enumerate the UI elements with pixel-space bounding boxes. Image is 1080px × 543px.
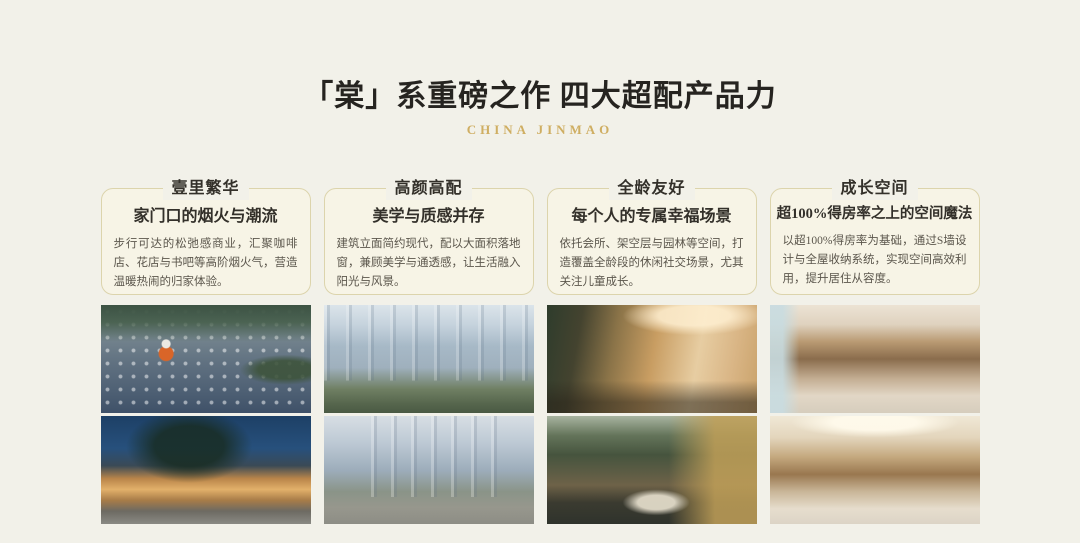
- brand-wordmark: CHINA JINMAO: [0, 122, 1080, 138]
- feature-card: 全龄友好 每个人的专属幸福场景 依托会所、架空层与园林等空间，打造覆盖全龄段的休…: [547, 188, 757, 295]
- card-heading: 成长空间: [831, 178, 917, 200]
- card-subheading: 家门口的烟火与潮流: [106, 202, 306, 226]
- product-columns: 壹里繁华 家门口的烟火与潮流 步行可达的松弛感商业，汇聚咖啡店、花店与书吧等高阶…: [0, 188, 1080, 524]
- column-space-magic: 成长空间 超100%得房率之上的空间魔法 以超100%得房率为基础，通过S墙设计…: [770, 188, 980, 524]
- card-subheading: 超100%得房率之上的空间魔法: [775, 202, 975, 223]
- card-description: 步行可达的松弛感商业，汇聚咖啡店、花店与书吧等高阶烟火气，营造温暖热闹的归家体验…: [114, 235, 298, 292]
- column-facade-quality: 高颜高配 美学与质感并存 建筑立面简约现代，配以大面积落地窗，兼顾美学与通透感，…: [324, 188, 534, 524]
- courtyard-garden-dusk-photo: [547, 416, 757, 524]
- column-all-age-friendly: 全龄友好 每个人的专属幸福场景 依托会所、架空层与园林等空间，打造覆盖全龄段的休…: [547, 188, 757, 524]
- aerial-plaza-dusk-photo: [101, 305, 311, 413]
- card-subheading: 美学与质感并存: [329, 202, 529, 226]
- home-storage-bar-photo: [770, 416, 980, 524]
- card-description: 建筑立面简约现代，配以大面积落地窗，兼顾美学与通透感，让生活融入阳光与风景。: [337, 235, 521, 292]
- retail-street-night-photo: [101, 416, 311, 524]
- feature-card: 壹里繁华 家门口的烟火与潮流 步行可达的松弛感商业，汇聚咖啡店、花店与书吧等高阶…: [101, 188, 311, 295]
- card-description: 以超100%得房率为基础，通过S墙设计与全屋收纳系统，实现空间高效利用，提升居住…: [783, 232, 967, 289]
- promo-page: 「棠」系重磅之作 四大超配产品力 CHINA JINMAO 壹里繁华 家门口的烟…: [0, 0, 1080, 543]
- tower-garden-path-photo: [324, 416, 534, 524]
- page-title: 「棠」系重磅之作 四大超配产品力: [0, 0, 1080, 113]
- card-heading: 壹里繁华: [162, 178, 248, 200]
- bedroom-wardrobe-photo: [770, 305, 980, 413]
- card-subheading: 每个人的专属幸福场景: [552, 202, 752, 226]
- feature-card: 成长空间 超100%得房率之上的空间魔法 以超100%得房率为基础，通过S墙设计…: [770, 188, 980, 295]
- feature-card: 高颜高配 美学与质感并存 建筑立面简约现代，配以大面积落地窗，兼顾美学与通透感，…: [324, 188, 534, 295]
- card-description: 依托会所、架空层与园林等空间，打造覆盖全龄段的休闲社交场景，尤其关注儿童成长。: [560, 235, 744, 292]
- card-heading: 全龄友好: [608, 178, 694, 200]
- clubhouse-lounge-photo: [547, 305, 757, 413]
- card-heading: 高颜高配: [385, 178, 471, 200]
- residential-towers-day-photo: [324, 305, 534, 413]
- column-neighborhood-retail: 壹里繁华 家门口的烟火与潮流 步行可达的松弛感商业，汇聚咖啡店、花店与书吧等高阶…: [101, 188, 311, 524]
